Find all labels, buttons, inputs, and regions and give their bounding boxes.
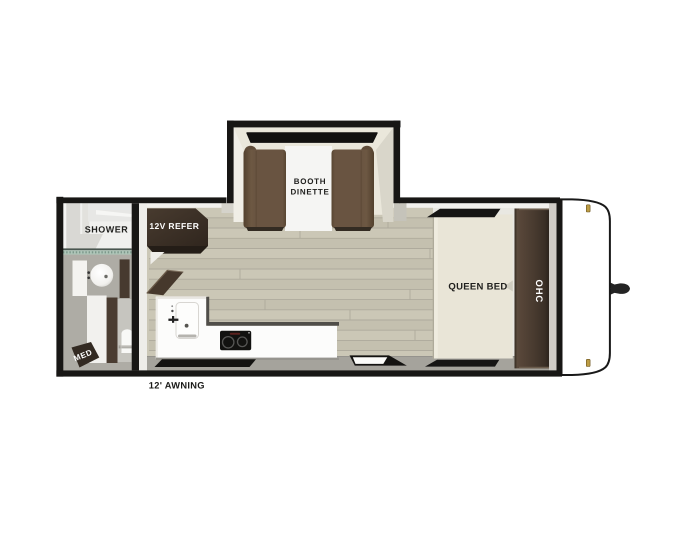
svg-text:DINETTE: DINETTE: [290, 188, 329, 197]
svg-text:SHOWER: SHOWER: [85, 224, 129, 234]
svg-text:BOOTH: BOOTH: [294, 177, 326, 186]
svg-text:12' AWNING: 12' AWNING: [149, 380, 205, 390]
svg-text:OHC: OHC: [533, 280, 544, 304]
svg-text:12V REFER: 12V REFER: [149, 221, 199, 231]
svg-text:QUEEN BED: QUEEN BED: [448, 281, 507, 292]
